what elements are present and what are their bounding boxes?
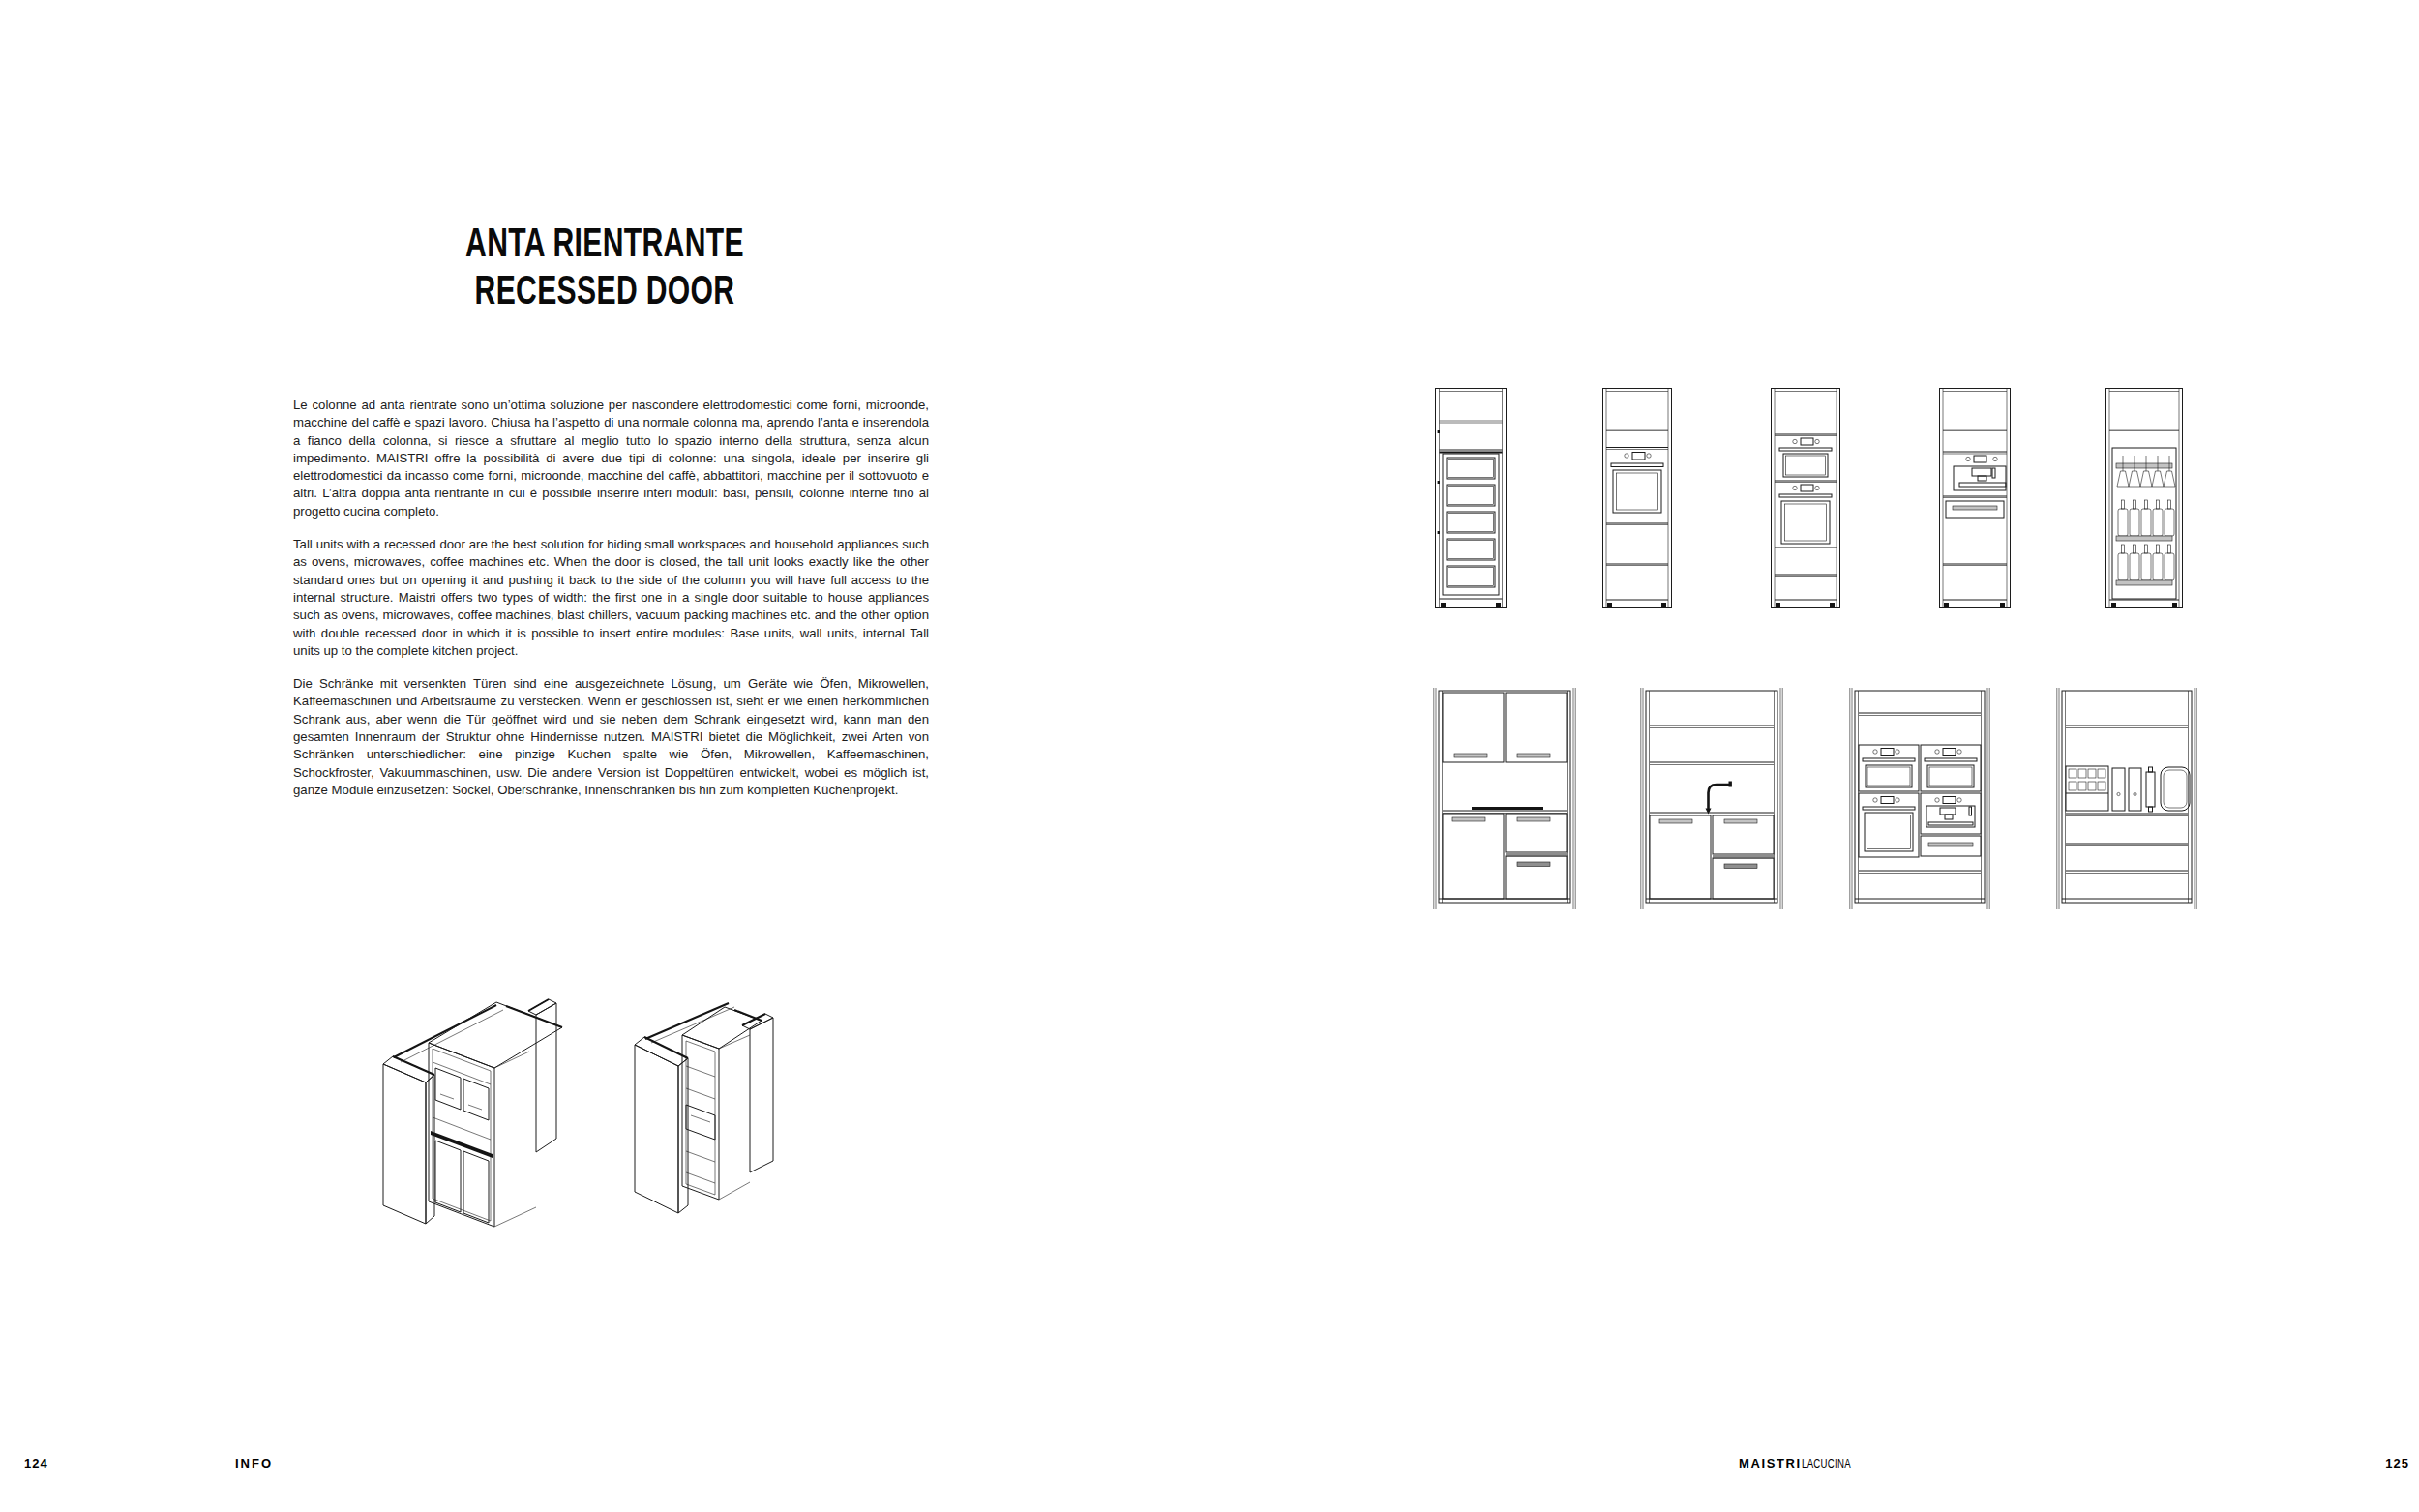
isometric-single-recessed-door-drawing bbox=[622, 989, 787, 1221]
paragraph-english: Tall units with a recessed door are the … bbox=[293, 536, 929, 660]
title-line-italian: ANTA RIENTRANTE bbox=[446, 219, 764, 266]
tall-unit-single-oven-drawing bbox=[1602, 388, 1672, 608]
page-number-right: 125 bbox=[2361, 1456, 2409, 1470]
brand-light: LACUCINA bbox=[1802, 1456, 1851, 1470]
catalog-spread: ANTA RIENTRANTE RECESSED DOOR Le colonne… bbox=[0, 0, 2419, 1512]
brand-logo: MAISTRILACUCINA bbox=[1739, 1456, 1868, 1470]
page-title: ANTA RIENTRANTE RECESSED DOOR bbox=[377, 219, 832, 313]
paragraph-german: Die Schränke mit versenkten Türen sind e… bbox=[293, 675, 929, 799]
double-unit-appliance-bank-drawing bbox=[1849, 688, 1990, 910]
tall-unit-bottle-rack-drawing bbox=[2105, 388, 2183, 608]
paragraph-italian: Le colonne ad anta rientrate sono un’ott… bbox=[293, 397, 929, 520]
tall-unit-coffee-machine-drawing bbox=[1939, 388, 2011, 608]
double-unit-cooktop-drawing bbox=[1433, 688, 1576, 910]
tall-unit-double-oven-drawing bbox=[1771, 388, 1840, 608]
isometric-double-recessed-door-drawing bbox=[371, 970, 583, 1251]
title-line-english: RECESSED DOOR bbox=[446, 266, 764, 313]
double-unit-accessory-drawers-drawing bbox=[2056, 688, 2197, 910]
footer-section-label: INFO bbox=[235, 1456, 273, 1470]
tall-unit-drawers-drawing bbox=[1435, 388, 1507, 608]
body-copy: Le colonne ad anta rientrate sono un’ott… bbox=[293, 397, 929, 815]
brand-bold: MAISTRI bbox=[1739, 1456, 1802, 1470]
double-unit-tap-drawing bbox=[1640, 688, 1783, 910]
page-number-left: 124 bbox=[24, 1456, 48, 1470]
